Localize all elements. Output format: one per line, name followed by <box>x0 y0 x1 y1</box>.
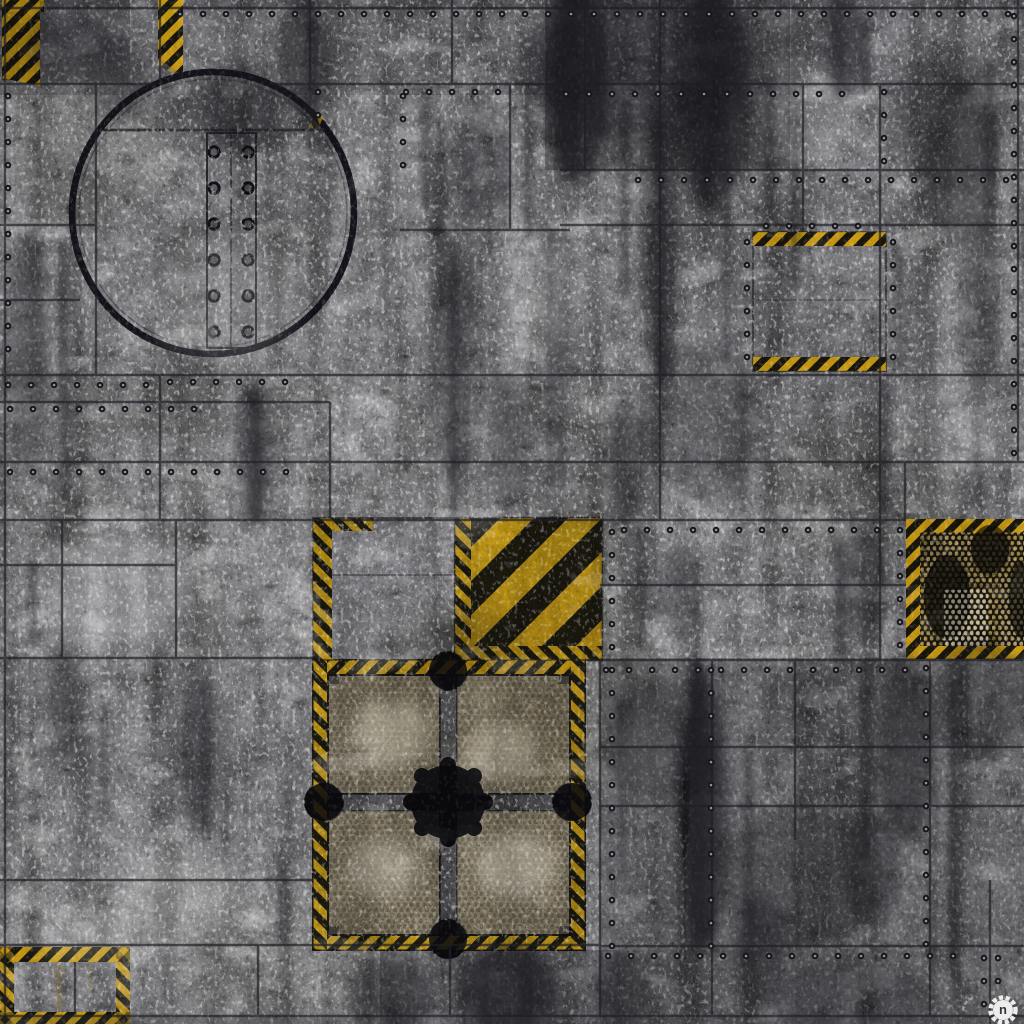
svg-text:n: n <box>999 1002 1007 1017</box>
